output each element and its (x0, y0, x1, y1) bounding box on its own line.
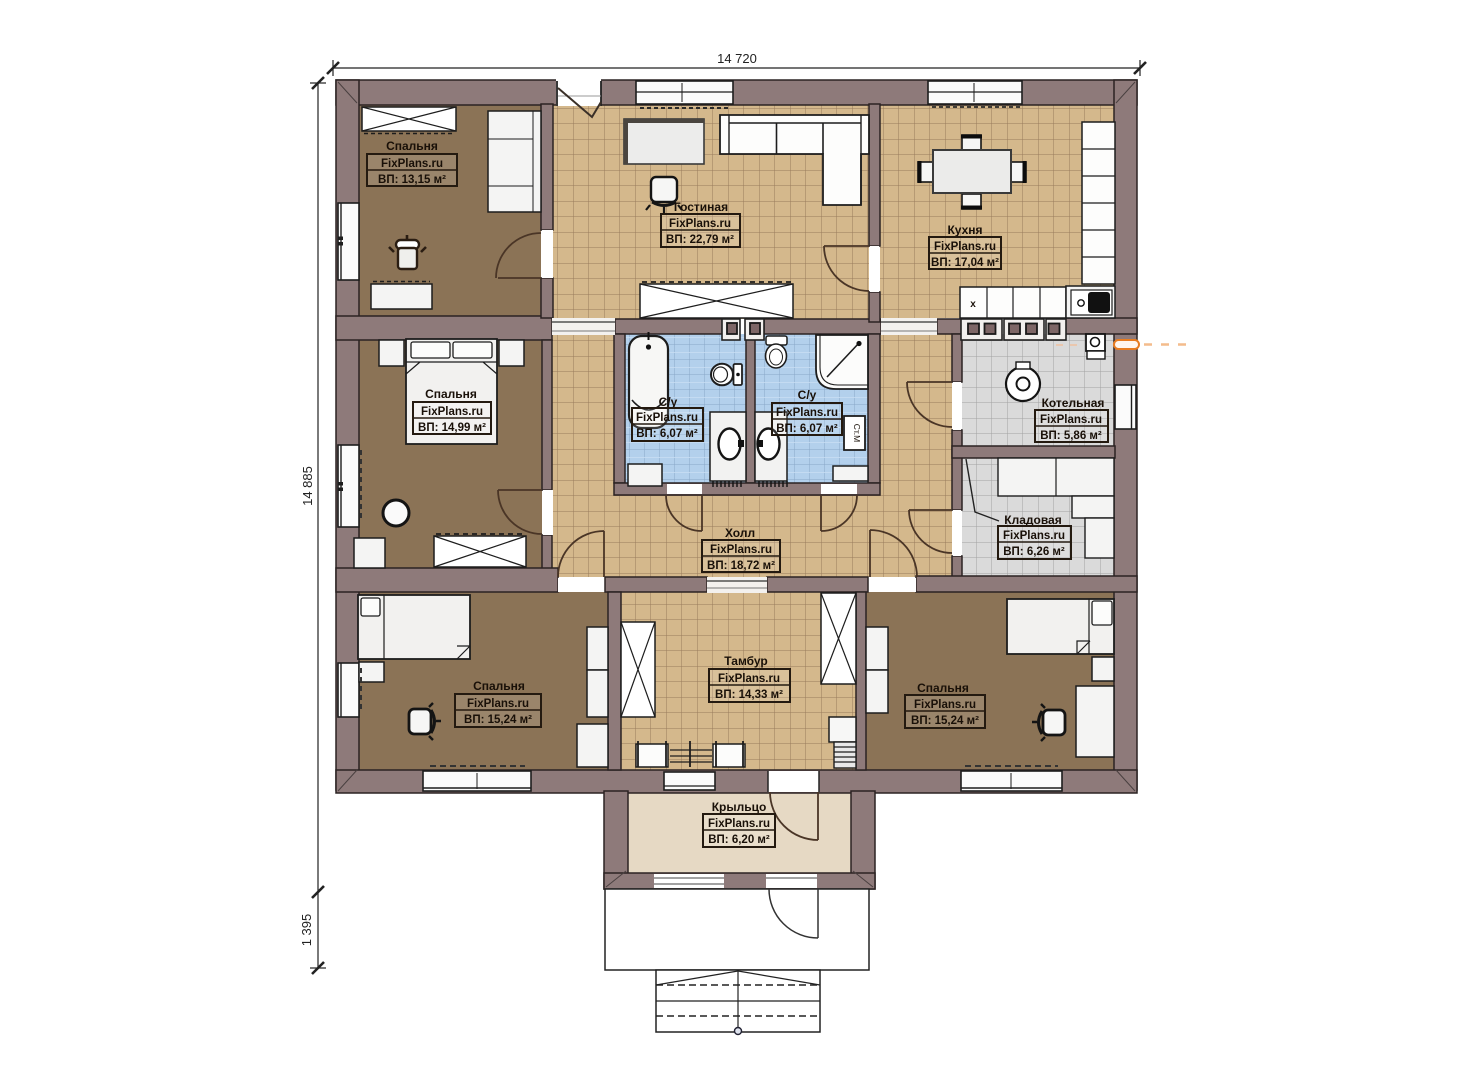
svg-text:ВП: 6,07 м²: ВП: 6,07 м² (776, 423, 838, 435)
svg-text:1 395: 1 395 (299, 914, 314, 947)
svg-text:Ст.М: Ст.М (852, 424, 862, 443)
svg-text:ВП: 6,26 м²: ВП: 6,26 м² (1003, 546, 1065, 558)
svg-text:С/у: С/у (659, 395, 678, 409)
svg-text:x: x (970, 299, 976, 310)
svg-text:ВП: 17,04 м²: ВП: 17,04 м² (931, 257, 999, 269)
svg-text:FixPlans.ru: FixPlans.ru (1040, 414, 1102, 426)
svg-text:С/у: С/у (798, 388, 817, 402)
svg-text:FixPlans.ru: FixPlans.ru (669, 218, 731, 230)
svg-text:14 885: 14 885 (300, 466, 315, 506)
svg-text:FixPlans.ru: FixPlans.ru (636, 412, 698, 424)
svg-text:ВП: 15,24 м²: ВП: 15,24 м² (911, 715, 979, 727)
svg-text:ВП: 6,07 м²: ВП: 6,07 м² (636, 428, 698, 440)
svg-text:FixPlans.ru: FixPlans.ru (421, 406, 483, 418)
svg-text:Кухня: Кухня (947, 223, 982, 237)
svg-text:FixPlans.ru: FixPlans.ru (914, 699, 976, 711)
svg-text:FixPlans.ru: FixPlans.ru (718, 673, 780, 685)
svg-text:Холл: Холл (725, 526, 755, 540)
svg-text:Спальня: Спальня (386, 139, 438, 153)
svg-text:14 720: 14 720 (717, 51, 757, 66)
svg-text:ВП: 6,20 м²: ВП: 6,20 м² (708, 834, 770, 846)
svg-text:FixPlans.ru: FixPlans.ru (710, 544, 772, 556)
svg-text:FixPlans.ru: FixPlans.ru (467, 698, 529, 710)
svg-text:Кладовая: Кладовая (1004, 513, 1061, 527)
svg-text:FixPlans.ru: FixPlans.ru (708, 818, 770, 830)
svg-text:Спальня: Спальня (473, 679, 525, 693)
svg-text:Тамбур: Тамбур (724, 654, 768, 668)
svg-text:ВП: 18,72 м²: ВП: 18,72 м² (707, 560, 775, 572)
svg-text:ВП: 15,24 м²: ВП: 15,24 м² (464, 714, 532, 726)
svg-text:ВП: 5,86 м²: ВП: 5,86 м² (1040, 430, 1102, 442)
svg-text:FixPlans.ru: FixPlans.ru (776, 407, 838, 419)
svg-text:Гостиная: Гостиная (674, 200, 728, 214)
svg-text:Крыльцо: Крыльцо (712, 800, 767, 814)
svg-text:Спальня: Спальня (425, 387, 477, 401)
svg-text:ВП: 14,99 м²: ВП: 14,99 м² (418, 422, 486, 434)
svg-text:ВП: 22,79 м²: ВП: 22,79 м² (666, 234, 734, 246)
svg-text:Котельная: Котельная (1042, 396, 1105, 410)
svg-text:ВП: 14,33 м²: ВП: 14,33 м² (715, 689, 783, 701)
svg-text:ВП: 13,15 м²: ВП: 13,15 м² (378, 174, 446, 186)
svg-text:Спальня: Спальня (917, 681, 969, 695)
svg-text:FixPlans.ru: FixPlans.ru (381, 158, 443, 170)
svg-text:FixPlans.ru: FixPlans.ru (1003, 530, 1065, 542)
svg-text:FixPlans.ru: FixPlans.ru (934, 241, 996, 253)
